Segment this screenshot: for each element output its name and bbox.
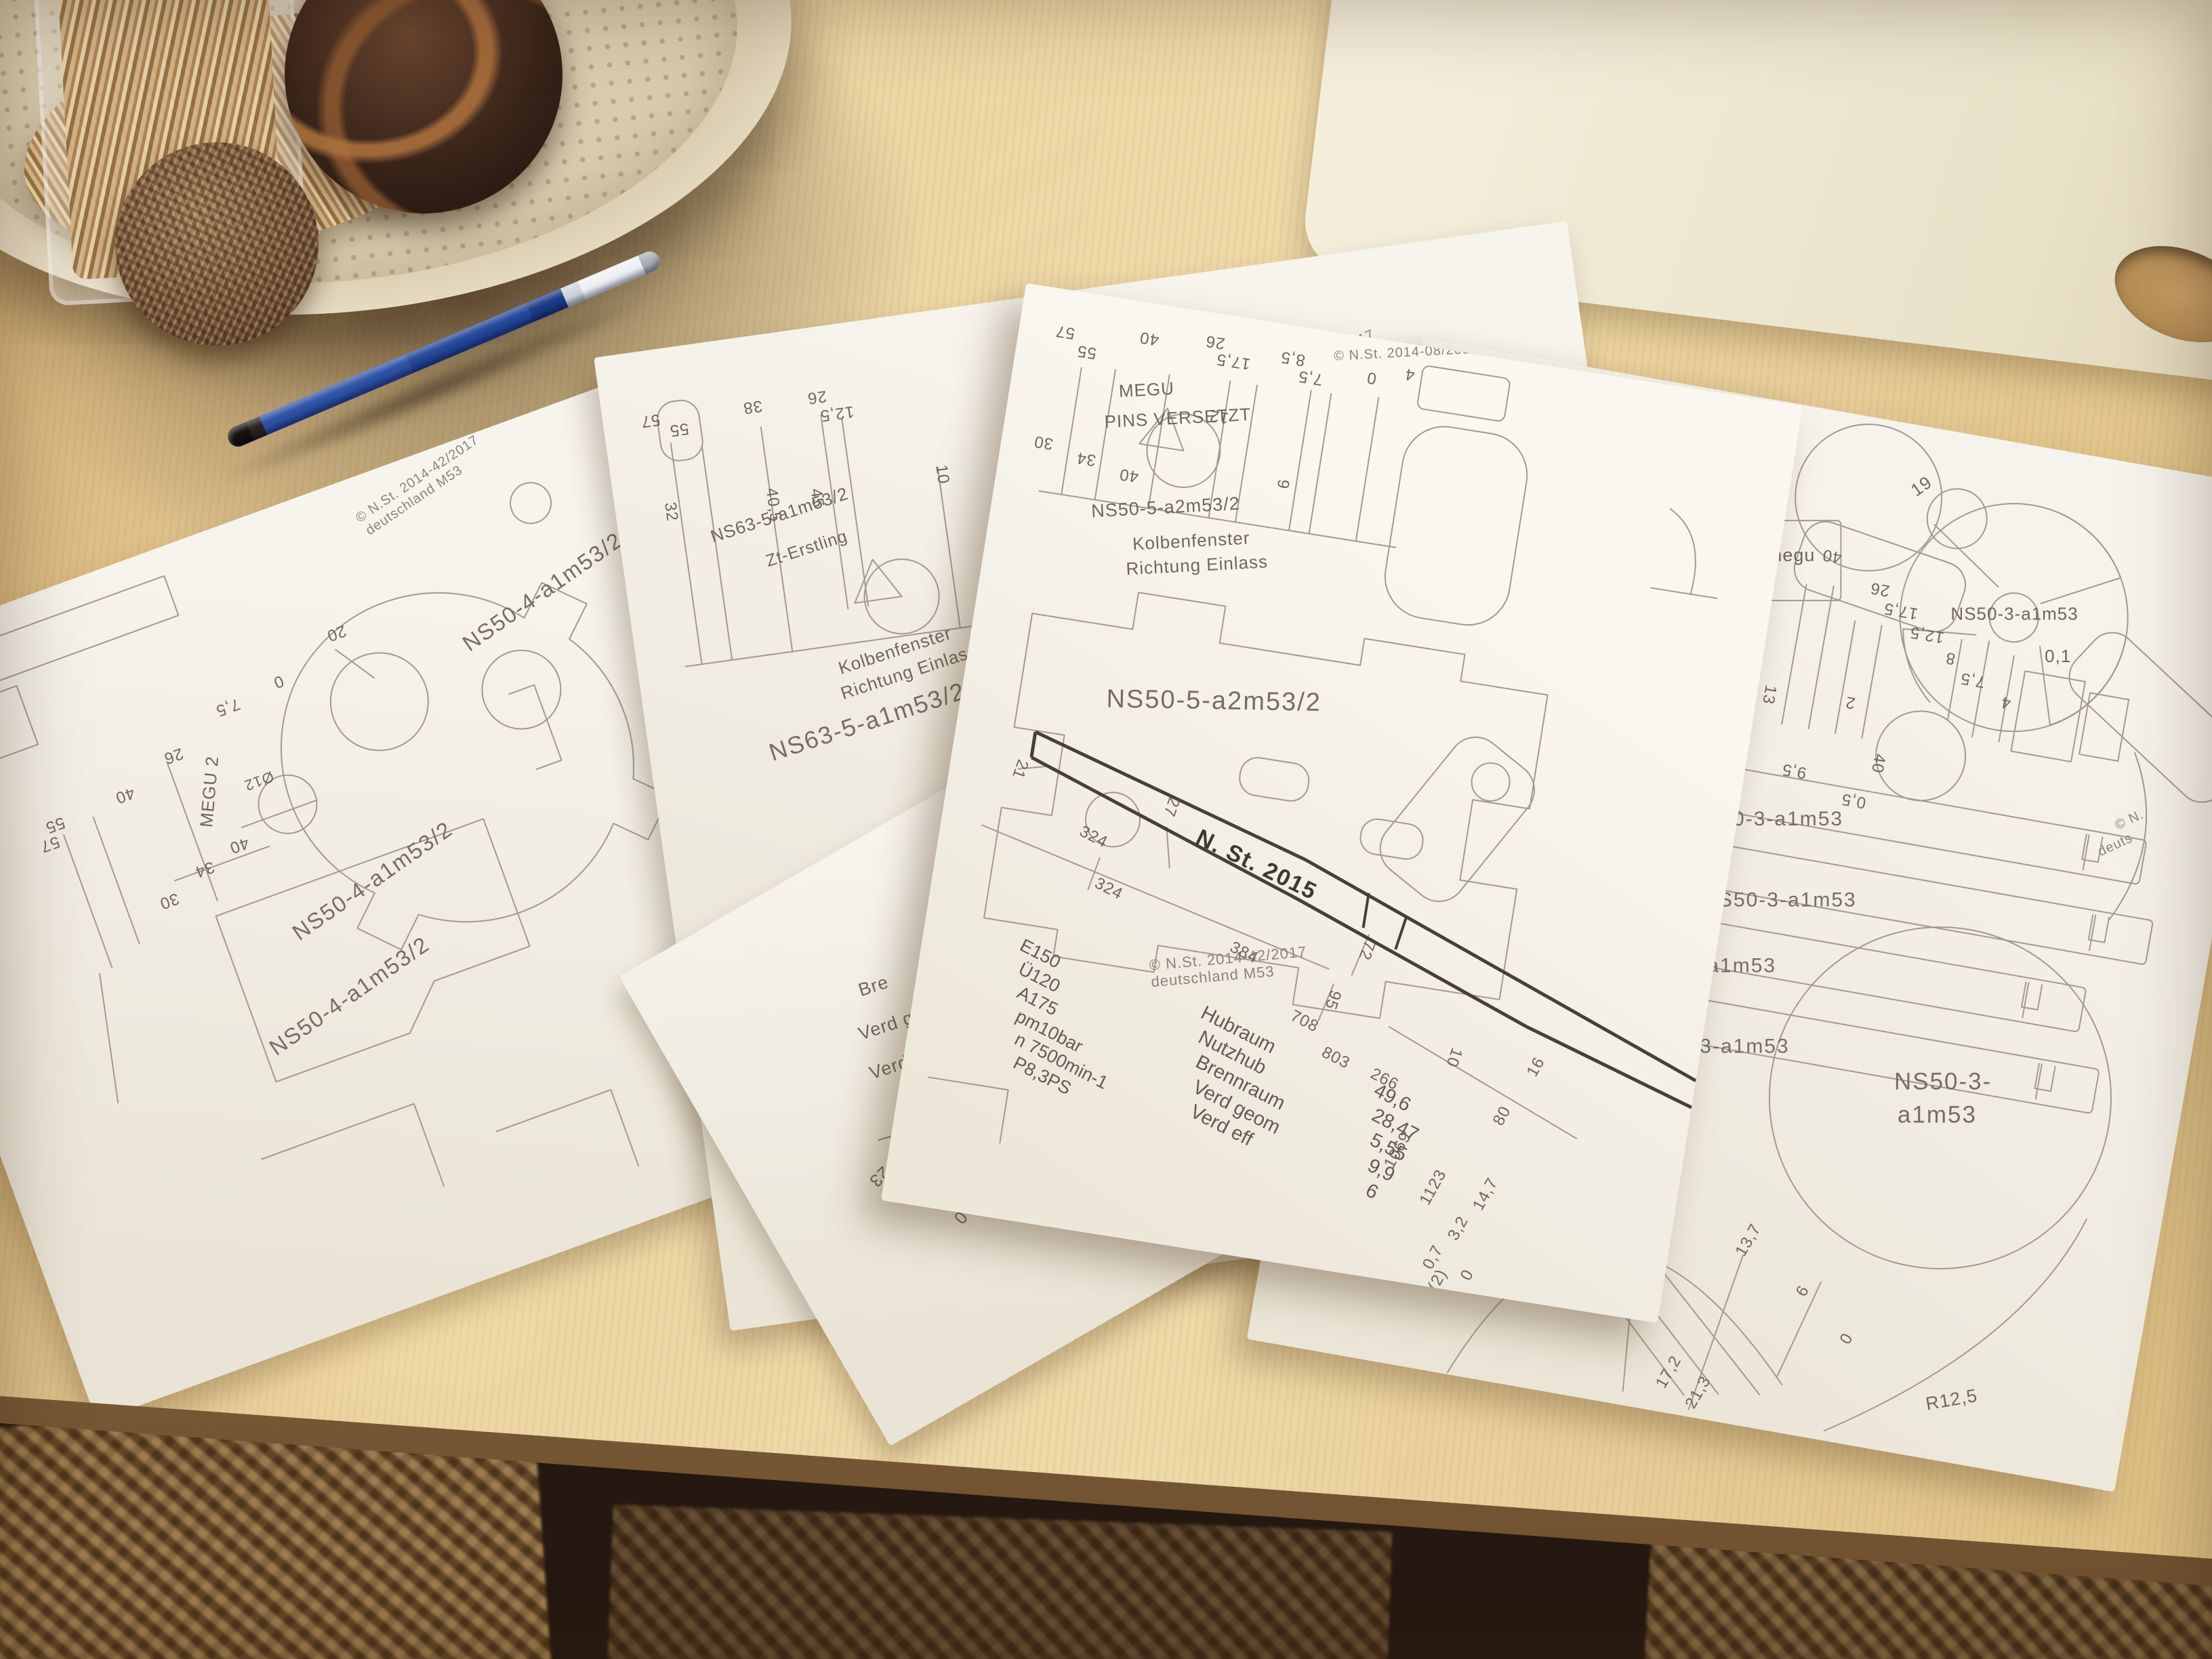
p3-part-label: NS50-5-a2m53/2 bbox=[1106, 684, 1322, 718]
p4-dim: 26 bbox=[1868, 578, 1891, 600]
p2-dim: 26 bbox=[806, 386, 827, 408]
p2-dim: 10 bbox=[931, 464, 953, 485]
p3-megu-1: MEGU bbox=[1118, 378, 1175, 402]
p3-dim: 40 bbox=[1138, 327, 1160, 349]
p2-dim: 55 bbox=[668, 419, 690, 441]
p4-dim: 9,5 bbox=[1780, 759, 1808, 782]
p4-circle-label-2: a1m53 bbox=[1898, 1102, 1977, 1129]
plan-sheet-ns50-5: 57 55 40 26 17,5 8,5 7,5 0 4 30 34 40 9 … bbox=[881, 283, 1803, 1324]
p4-dim: 0,5 bbox=[1840, 789, 1868, 812]
p4-dim: 13 bbox=[1758, 684, 1780, 706]
wicker-basket-middle bbox=[607, 1504, 1392, 1659]
p3-dim: 57 bbox=[1054, 321, 1076, 343]
p3-dim: 30 bbox=[1033, 432, 1055, 453]
cutting-board-hole bbox=[2101, 228, 2212, 361]
p3-dim: 40 bbox=[1118, 464, 1140, 486]
p4-prop-label: NS50-3-a1m53 bbox=[1950, 604, 2078, 625]
p4-dim: 40 bbox=[1867, 752, 1889, 775]
p4-dim: 40 bbox=[1821, 545, 1843, 567]
photo-scene: © N.St. 2014-42/2017 deutschland M53 NS5… bbox=[0, 0, 2212, 1659]
twine-ball bbox=[115, 142, 319, 346]
p4-dim: 7,5 bbox=[1959, 668, 1986, 691]
p2-dim: 38 bbox=[741, 396, 763, 417]
p4-prop-tolerance: 0,1 bbox=[2045, 646, 2071, 667]
p2-dim: 57 bbox=[640, 409, 661, 431]
p3-dim: 34 bbox=[1076, 448, 1098, 470]
p3-dim: 55 bbox=[1076, 341, 1098, 363]
p3-dim: 7,5 bbox=[1297, 366, 1324, 388]
p2-dim: 45 bbox=[806, 487, 827, 509]
p4-circle-label-1: NS50-3- bbox=[1894, 1068, 1992, 1095]
p2-dim: 32 bbox=[660, 501, 682, 523]
